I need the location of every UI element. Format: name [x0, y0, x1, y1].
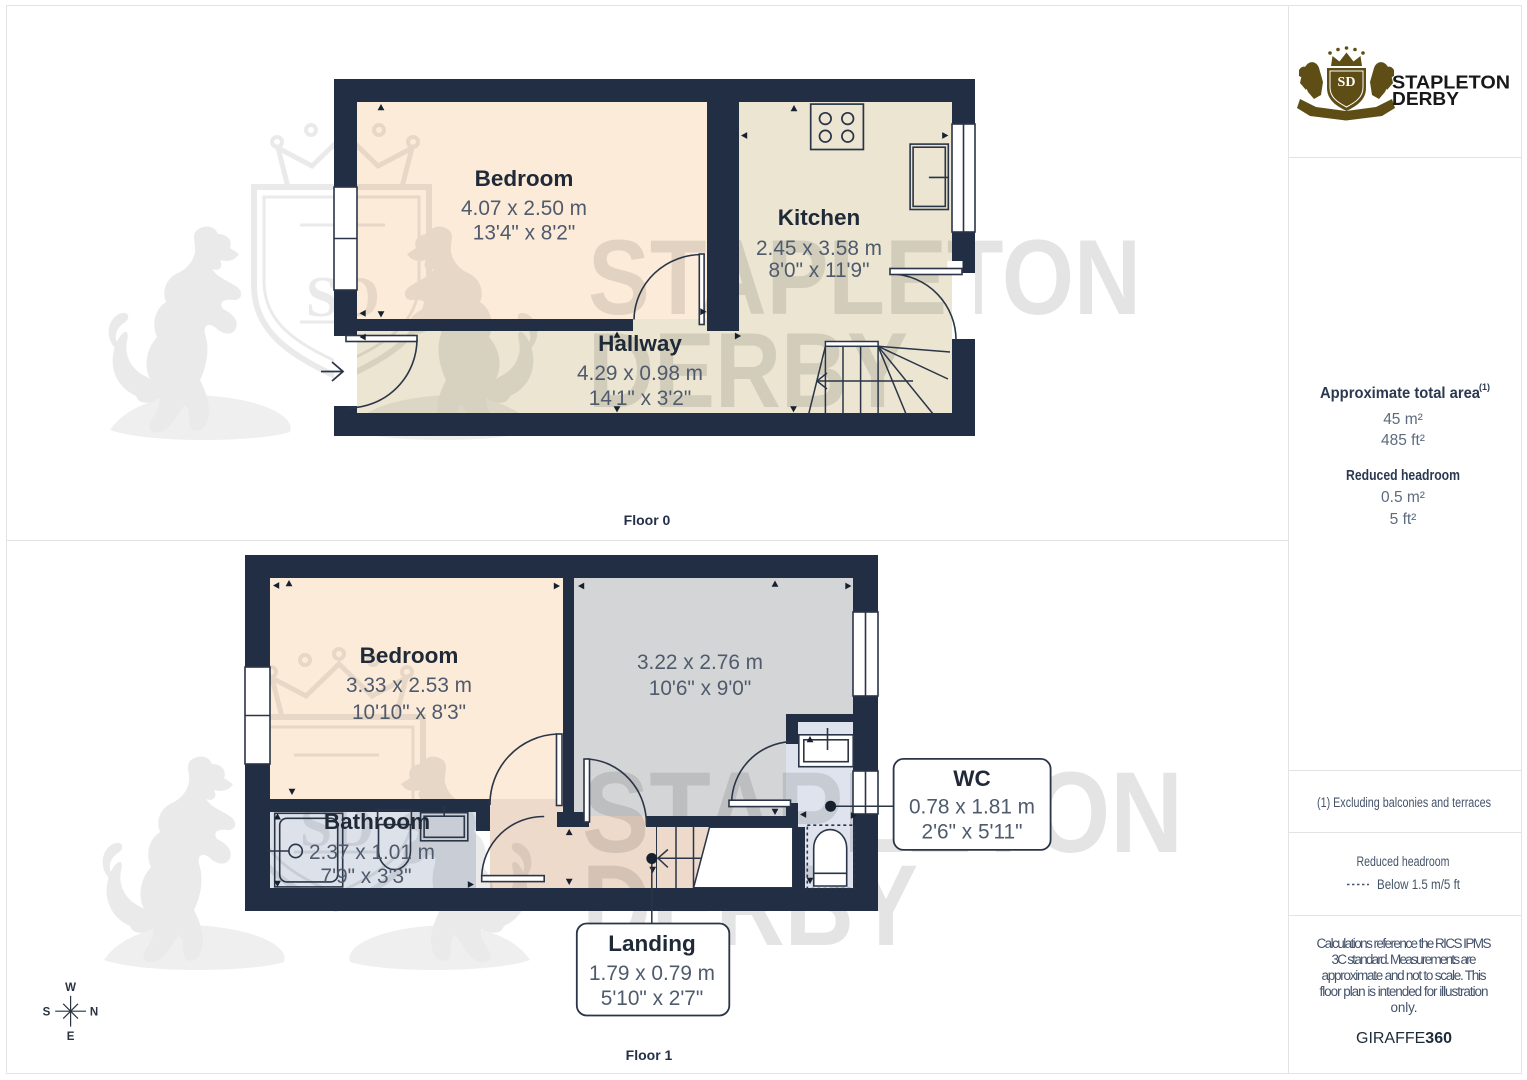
svg-text:Approximate total area: Approximate total area: [1320, 385, 1480, 402]
svg-text:Floor 0: Floor 0: [624, 512, 671, 528]
svg-text:45 m²: 45 m²: [1383, 411, 1423, 428]
svg-text:Below 1.5 m/5 ft: Below 1.5 m/5 ft: [1377, 877, 1460, 892]
svg-text:Calculations reference the RIC: Calculations reference the RICS IPMS: [1317, 936, 1492, 951]
svg-text:GIRAFFE360: GIRAFFE360: [1356, 1030, 1452, 1047]
svg-text:Kitchen: Kitchen: [778, 205, 861, 230]
svg-text:Floor 1: Floor 1: [626, 1047, 673, 1063]
svg-text:Landing: Landing: [608, 931, 695, 956]
svg-text:(1) Excluding balconies and te: (1) Excluding balconies and terraces: [1317, 795, 1491, 810]
svg-text:14'1" x 3'2": 14'1" x 3'2": [589, 387, 692, 410]
svg-text:(1): (1): [1479, 382, 1490, 392]
svg-text:Bedroom: Bedroom: [475, 166, 574, 191]
svg-text:3C standard. Measurements are: 3C standard. Measurements are: [1332, 952, 1477, 967]
svg-text:13'4" x 8'2": 13'4" x 8'2": [473, 222, 576, 245]
svg-text:Reduced headroom: Reduced headroom: [1346, 467, 1460, 484]
svg-text:4.07 x 2.50 m: 4.07 x 2.50 m: [461, 197, 587, 220]
svg-text:0.5 m²: 0.5 m²: [1381, 489, 1425, 506]
svg-text:floor plan is intended for ill: floor plan is intended for illustration: [1320, 984, 1489, 999]
svg-text:8'0" x 11'9": 8'0" x 11'9": [769, 259, 870, 282]
svg-text:S: S: [43, 1006, 51, 1018]
svg-text:485 ft²: 485 ft²: [1381, 432, 1425, 449]
svg-text:only.: only.: [1391, 1000, 1418, 1015]
svg-text:3.33 x 2.53 m: 3.33 x 2.53 m: [346, 674, 472, 697]
svg-text:10'6" x 9'0": 10'6" x 9'0": [649, 677, 752, 700]
svg-text:2'6" x 5'11": 2'6" x 5'11": [922, 821, 1023, 844]
svg-text:0.78 x 1.81 m: 0.78 x 1.81 m: [909, 796, 1035, 819]
svg-text:WC: WC: [953, 766, 991, 791]
svg-text:10'10" x 8'3": 10'10" x 8'3": [352, 701, 466, 724]
svg-text:Bathroom: Bathroom: [324, 809, 430, 834]
svg-text:2.37 x 1.01 m: 2.37 x 1.01 m: [309, 841, 435, 864]
svg-text:4.29 x 0.98 m: 4.29 x 0.98 m: [577, 362, 703, 385]
svg-text:N: N: [90, 1006, 98, 1018]
svg-text:2.45 x 3.58 m: 2.45 x 3.58 m: [756, 237, 882, 260]
svg-text:W: W: [65, 982, 76, 994]
svg-text:5'10" x 2'7": 5'10" x 2'7": [601, 987, 704, 1010]
svg-text:Reduced headroom: Reduced headroom: [1357, 854, 1450, 869]
svg-text:Bedroom: Bedroom: [360, 643, 459, 668]
svg-text:approximate and not to scale.: approximate and not to scale. This: [1322, 968, 1487, 983]
svg-text:SD: SD: [1338, 75, 1356, 90]
svg-text:7'9" x 3'3": 7'9" x 3'3": [321, 865, 412, 888]
svg-text:DERBY: DERBY: [1392, 89, 1459, 109]
svg-text:5 ft²: 5 ft²: [1390, 511, 1417, 528]
svg-text:1.79 x 0.79 m: 1.79 x 0.79 m: [589, 962, 715, 985]
svg-text:Hallway: Hallway: [598, 331, 682, 356]
svg-text:3.22 x 2.76 m: 3.22 x 2.76 m: [637, 651, 763, 674]
svg-text:E: E: [67, 1031, 75, 1043]
